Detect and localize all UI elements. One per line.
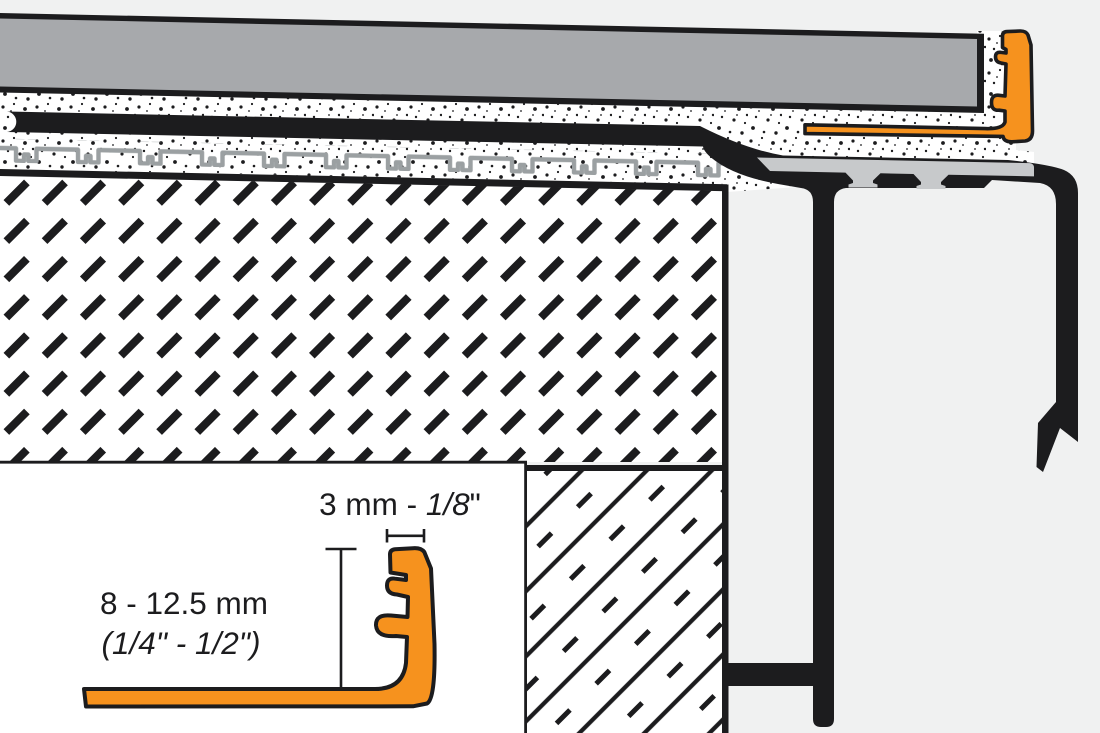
mortar-bed-layer bbox=[0, 176, 727, 462]
tile-edge-profile-installation-diagram: 3 mm - 1/8" 8 - 12.5 mm (1/4" - 1/2") bbox=[0, 0, 1100, 733]
technical-drawing-canvas bbox=[0, 0, 1100, 733]
height-dimension-metric-label: 8 - 12.5 mm bbox=[86, 587, 282, 620]
width-dimension-imperial: 1/8 bbox=[426, 486, 470, 522]
height-dimension-imperial-label: (1/4" - 1/2") bbox=[83, 627, 279, 660]
width-dimension-label: 3 mm - 1/8" bbox=[288, 488, 512, 521]
concrete-substrate bbox=[527, 465, 727, 733]
slab-edge-line bbox=[722, 185, 729, 733]
width-dimension-unit-mark: " bbox=[470, 486, 481, 522]
width-dimension-metric: 3 mm - bbox=[319, 486, 426, 522]
profile-support-arm bbox=[722, 663, 813, 686]
